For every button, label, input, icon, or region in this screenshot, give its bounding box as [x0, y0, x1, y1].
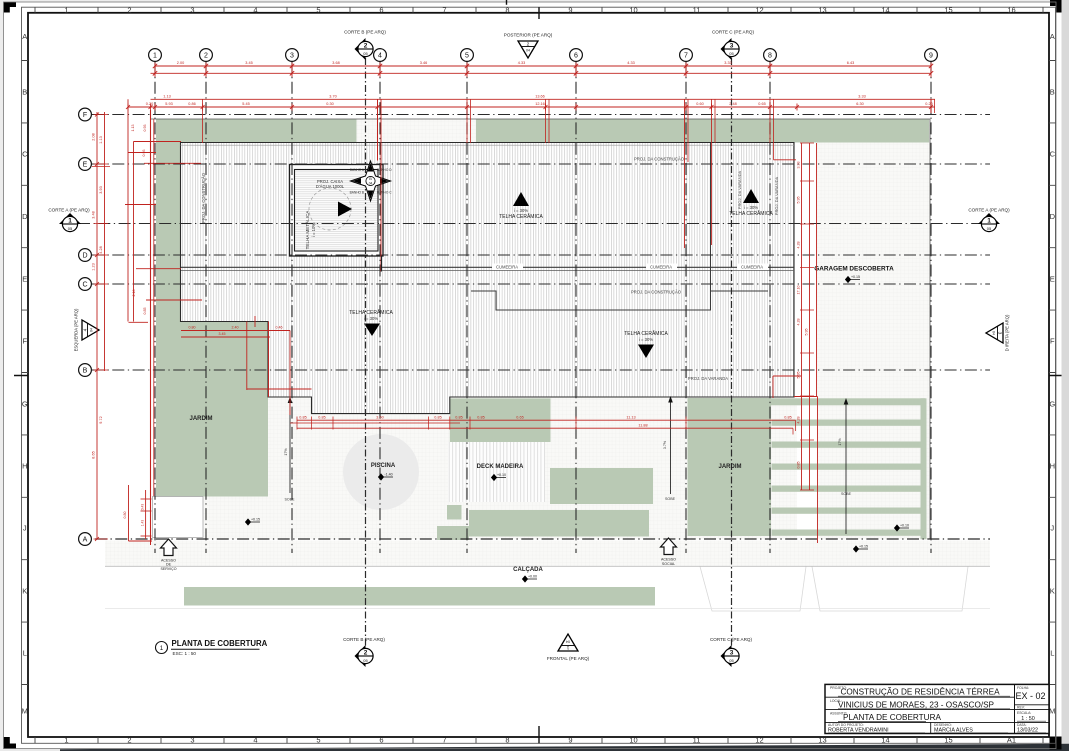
svg-text:TELHA CERÂMICA: TELHA CERÂMICA	[729, 210, 773, 217]
svg-text:A: A	[83, 537, 88, 544]
svg-text:L: L	[23, 649, 27, 658]
svg-text:4: 4	[378, 53, 382, 60]
svg-text:4.33: 4.33	[518, 61, 525, 65]
svg-text:PROJ. DA VARANDA: PROJ. DA VARANDA	[737, 170, 742, 209]
svg-text:3.33: 3.33	[858, 94, 865, 98]
svg-text:8: 8	[768, 53, 772, 60]
svg-text:4: 4	[82, 328, 88, 331]
svg-text:5.95: 5.95	[797, 372, 801, 379]
svg-text:11: 11	[693, 736, 701, 745]
svg-text:17%: 17%	[838, 438, 842, 446]
svg-text:05: 05	[68, 226, 73, 231]
svg-text:5.93: 5.93	[165, 102, 172, 106]
svg-text:+0.15: +0.15	[851, 275, 860, 279]
svg-text:3: 3	[190, 5, 194, 14]
svg-text:BANHO D: BANHO D	[377, 168, 392, 172]
svg-text:7: 7	[442, 736, 446, 745]
svg-text:1: 1	[153, 53, 157, 60]
svg-text:3.33: 3.33	[724, 61, 731, 65]
svg-text:3: 3	[190, 736, 194, 745]
svg-text:13: 13	[818, 736, 826, 745]
svg-text:SOBE: SOBE	[665, 497, 676, 501]
svg-text:11.13: 11.13	[626, 415, 635, 419]
svg-text:16: 16	[1007, 5, 1015, 14]
svg-text:4.28: 4.28	[797, 417, 801, 424]
svg-text:F: F	[83, 112, 87, 119]
svg-text:CORTE A (PE ARQ): CORTE A (PE ARQ)	[968, 208, 1010, 213]
svg-text:4.28: 4.28	[797, 242, 801, 249]
svg-text:3: 3	[730, 43, 734, 50]
svg-text:1.13: 1.13	[99, 136, 103, 143]
svg-text:13: 13	[818, 5, 826, 14]
svg-text:SERVIÇO: SERVIÇO	[160, 567, 176, 571]
svg-text:FOLHA:: FOLHA:	[1017, 686, 1029, 690]
svg-text:05: 05	[363, 658, 368, 663]
svg-text:2: 2	[527, 41, 530, 47]
svg-text:0.46: 0.46	[276, 325, 283, 329]
svg-text:04: 04	[526, 49, 530, 53]
svg-text:ESQUERDA (PE ARQ): ESQUERDA (PE ARQ)	[74, 308, 79, 351]
svg-text:PLANTA DE COBERTURA: PLANTA DE COBERTURA	[843, 713, 942, 722]
svg-text:5: 5	[316, 736, 320, 745]
svg-text:C: C	[82, 282, 87, 289]
svg-text:0.86: 0.86	[188, 102, 195, 106]
svg-text:i = 30%: i = 30%	[639, 337, 653, 342]
svg-text:SOBE: SOBE	[285, 498, 296, 502]
svg-text:D: D	[82, 253, 87, 260]
svg-text:1.13: 1.13	[131, 125, 135, 132]
svg-text:8: 8	[505, 5, 509, 14]
svg-text:3: 3	[997, 332, 1003, 335]
svg-text:D: D	[1050, 212, 1056, 221]
svg-text:8: 8	[505, 736, 509, 745]
svg-text:C: C	[22, 150, 28, 159]
svg-text:10: 10	[629, 5, 637, 14]
svg-text:3.7%: 3.7%	[663, 440, 667, 449]
svg-text:11: 11	[693, 5, 701, 14]
svg-text:BANHO A: BANHO A	[350, 168, 365, 172]
svg-text:FRONTAL (PE ARQ): FRONTAL (PE ARQ)	[547, 656, 590, 661]
svg-text:1: 1	[987, 218, 991, 225]
svg-text:L: L	[1050, 649, 1054, 658]
svg-text:3.45: 3.45	[245, 61, 252, 65]
svg-text:2: 2	[204, 53, 208, 60]
svg-text:JARDIM: JARDIM	[718, 464, 741, 470]
svg-text:CUMEEIRA: CUMEEIRA	[650, 265, 672, 270]
svg-text:F: F	[1050, 337, 1055, 346]
svg-text:3.70: 3.70	[329, 94, 336, 98]
svg-text:REV:: REV:	[1017, 705, 1025, 709]
svg-text:6.43: 6.43	[847, 61, 854, 65]
svg-text:PROJ. DA CONSTRUÇÃO: PROJ. DA CONSTRUÇÃO	[631, 290, 682, 295]
svg-text:CORTE B (PE ARQ): CORTE B (PE ARQ)	[343, 637, 385, 642]
svg-text:0.20: 0.20	[925, 102, 932, 106]
svg-text:F: F	[23, 337, 28, 346]
svg-text:05: 05	[987, 226, 992, 231]
svg-text:14: 14	[881, 736, 889, 745]
svg-text:1: 1	[64, 5, 68, 14]
svg-text:1: 1	[160, 645, 164, 652]
svg-text:17%: 17%	[284, 448, 288, 456]
svg-text:05: 05	[729, 658, 734, 663]
svg-text:CORTE C (PE ARQ): CORTE C (PE ARQ)	[710, 637, 752, 642]
svg-text:DECK MADEIRA: DECK MADEIRA	[477, 464, 524, 470]
svg-text:CORTE A (PE ARQ): CORTE A (PE ARQ)	[48, 208, 90, 213]
svg-text:9: 9	[568, 736, 572, 745]
svg-text:11.88: 11.88	[638, 423, 647, 427]
svg-text:+0.15: +0.15	[251, 518, 260, 522]
svg-text:5: 5	[465, 53, 469, 60]
svg-text:0.30: 0.30	[326, 102, 333, 106]
svg-text:9: 9	[568, 5, 572, 14]
svg-text:0.85: 0.85	[455, 415, 462, 419]
svg-text:3: 3	[290, 53, 294, 60]
svg-text:2.48: 2.48	[729, 102, 736, 106]
svg-text:6.30: 6.30	[856, 102, 863, 106]
svg-text:K: K	[1050, 587, 1055, 596]
svg-text:JARDIM: JARDIM	[189, 416, 212, 422]
svg-text:J: J	[23, 524, 27, 533]
svg-text:04: 04	[566, 640, 570, 644]
svg-text:0.85: 0.85	[318, 415, 325, 419]
svg-text:PROJ. DA CONSTRUÇÃO: PROJ. DA CONSTRUÇÃO	[201, 172, 206, 223]
svg-text:K: K	[22, 587, 27, 596]
svg-text:12: 12	[755, 5, 763, 14]
svg-text:B: B	[1050, 87, 1055, 96]
svg-text:4: 4	[253, 5, 257, 14]
svg-text:2.08: 2.08	[92, 133, 96, 140]
svg-text:2: 2	[127, 736, 131, 745]
svg-text:3.68: 3.68	[332, 61, 339, 65]
svg-text:SOBE: SOBE	[841, 492, 852, 496]
svg-text:TELHA CERÂMICA: TELHA CERÂMICA	[499, 213, 543, 220]
svg-text:0.65: 0.65	[758, 102, 765, 106]
svg-text:3.48: 3.48	[92, 211, 96, 218]
svg-text:04: 04	[369, 182, 373, 186]
svg-text:E: E	[22, 275, 27, 284]
svg-text:5: 5	[316, 5, 320, 14]
svg-text:-1.40: -1.40	[384, 473, 392, 477]
svg-text:i = 30%: i = 30%	[364, 316, 378, 321]
svg-text:M: M	[1049, 707, 1055, 716]
svg-text:CORTE B (PE ARQ): CORTE B (PE ARQ)	[344, 30, 386, 35]
svg-text:04: 04	[90, 328, 94, 332]
svg-text:7: 7	[442, 5, 446, 14]
svg-text:+0.10: +0.10	[900, 524, 909, 528]
svg-text:J: J	[1050, 524, 1054, 533]
svg-text:13.66: 13.66	[535, 94, 545, 98]
svg-text:ACESSO: ACESSO	[661, 558, 676, 562]
svg-text:BANHO B: BANHO B	[350, 191, 364, 195]
svg-text:4.28: 4.28	[797, 319, 801, 326]
svg-text:14: 14	[881, 5, 889, 14]
svg-text:C: C	[1050, 150, 1056, 159]
svg-text:0.80: 0.80	[123, 512, 127, 519]
svg-text:05: 05	[729, 51, 734, 56]
svg-text:10: 10	[629, 736, 637, 745]
svg-text:17.10: 17.10	[797, 286, 801, 295]
svg-text:1: 1	[64, 736, 68, 745]
svg-text:+0.15: +0.15	[859, 545, 868, 549]
svg-text:POSTERIOR (PE ARQ): POSTERIOR (PE ARQ)	[504, 33, 553, 38]
svg-text:5.95: 5.95	[797, 197, 801, 204]
svg-text:2: 2	[364, 43, 368, 50]
svg-text:4.33: 4.33	[627, 61, 634, 65]
svg-text:1: 1	[566, 645, 569, 651]
svg-text:2.00: 2.00	[177, 61, 184, 65]
svg-text:E: E	[83, 162, 88, 169]
svg-text:PROJ. DA VARANDA: PROJ. DA VARANDA	[774, 176, 779, 215]
svg-text:15: 15	[944, 736, 952, 745]
svg-text:0.80: 0.80	[189, 325, 196, 329]
svg-text:05: 05	[363, 51, 368, 56]
svg-text:3.93: 3.93	[99, 186, 103, 193]
svg-text:04: 04	[992, 331, 996, 335]
svg-text:PISCINA: PISCINA	[371, 463, 396, 469]
svg-text:0.85: 0.85	[784, 415, 791, 419]
svg-text:TELHA METÁLICA: TELHA METÁLICA	[304, 210, 310, 250]
svg-text:A1: A1	[1007, 736, 1016, 745]
svg-text:1.23: 1.23	[92, 263, 96, 270]
svg-text:9.72: 9.72	[99, 416, 103, 423]
svg-text:B: B	[369, 177, 372, 181]
svg-text:B: B	[22, 87, 27, 96]
svg-text:5.95: 5.95	[805, 329, 809, 336]
svg-text:2.40: 2.40	[232, 325, 239, 329]
svg-text:2: 2	[127, 5, 131, 14]
svg-text:12.16: 12.16	[535, 102, 545, 106]
svg-text:M: M	[22, 707, 28, 716]
svg-text:D: D	[22, 212, 28, 221]
svg-text:6: 6	[379, 736, 383, 745]
svg-text:3.45: 3.45	[219, 332, 226, 336]
svg-text:0.85: 0.85	[143, 308, 147, 315]
svg-text:TELHA CERÂMICA: TELHA CERÂMICA	[624, 330, 668, 337]
svg-text:BANHO C: BANHO C	[377, 191, 392, 195]
svg-text:CONSTRUÇÃO DE RESIDÊNCIA TÉRRE: CONSTRUÇÃO DE RESIDÊNCIA TÉRREA	[840, 687, 1000, 697]
svg-text:0.85: 0.85	[434, 415, 441, 419]
svg-text:GARAGEM DESCOBERTA: GARAGEM DESCOBERTA	[814, 266, 894, 273]
svg-text:B: B	[83, 368, 88, 375]
svg-text:6: 6	[574, 53, 578, 60]
svg-text:5.45: 5.45	[242, 102, 249, 106]
svg-text:ESCALA:: ESCALA:	[1017, 711, 1031, 715]
svg-text:3.50: 3.50	[376, 415, 383, 419]
svg-text:H: H	[22, 462, 27, 471]
svg-text:0.93: 0.93	[143, 125, 147, 132]
svg-text:CORTE C (PE ARQ): CORTE C (PE ARQ)	[712, 30, 754, 35]
svg-text:0.93: 0.93	[142, 150, 146, 157]
svg-text:TELHA CERÂMICA: TELHA CERÂMICA	[349, 309, 393, 316]
svg-text:A: A	[22, 32, 27, 41]
svg-text:DESENHO:: DESENHO:	[934, 723, 952, 727]
svg-text:PROJ. DA VARANDA: PROJ. DA VARANDA	[688, 376, 728, 381]
svg-text:0.85: 0.85	[797, 462, 801, 469]
svg-text:3.33: 3.33	[797, 162, 801, 169]
svg-text:15: 15	[944, 5, 952, 14]
svg-text:PLANTA DE COBERTURA: PLANTA DE COBERTURA	[172, 639, 268, 648]
svg-text:G: G	[1049, 400, 1055, 409]
svg-text:0.65: 0.65	[516, 415, 523, 419]
svg-text:A: A	[1050, 32, 1055, 41]
svg-text:+0.10: +0.10	[497, 473, 506, 477]
svg-text:ESC: 1 : 50: ESC: 1 : 50	[173, 651, 197, 656]
svg-text:7: 7	[684, 53, 688, 60]
svg-text:0.60: 0.60	[696, 102, 703, 106]
svg-text:1.43: 1.43	[141, 520, 145, 527]
svg-text:3.46: 3.46	[420, 61, 427, 65]
svg-text:9: 9	[929, 53, 933, 60]
svg-text:6: 6	[379, 5, 383, 14]
svg-text:D'ÁGUA 1000L: D'ÁGUA 1000L	[316, 184, 345, 189]
svg-text:AUTOR DO PROJETO:: AUTOR DO PROJETO:	[828, 723, 864, 727]
svg-text:E: E	[1050, 275, 1055, 284]
svg-text:i = 10%: i = 10%	[311, 223, 316, 237]
svg-text:VINICIUS DE MORAES, 23 - OSASC: VINICIUS DE MORAES, 23 - OSASCO/SP	[838, 700, 995, 709]
svg-text:EX - 02: EX - 02	[1015, 691, 1045, 701]
svg-text:2: 2	[364, 650, 368, 657]
svg-text:0.85: 0.85	[299, 415, 306, 419]
svg-text:4.28: 4.28	[99, 246, 103, 253]
svg-text:H: H	[1050, 462, 1055, 471]
svg-text:D IREITA (PE ARQ): D IREITA (PE ARQ)	[1005, 314, 1010, 351]
svg-text:1.13: 1.13	[163, 94, 170, 98]
svg-text:3: 3	[730, 650, 734, 657]
svg-text:DATA:: DATA:	[1017, 723, 1027, 727]
svg-text:CALÇADA: CALÇADA	[513, 567, 543, 573]
svg-text:G: G	[22, 400, 28, 409]
svg-text:1: 1	[68, 218, 72, 225]
svg-text:i = 30%: i = 30%	[514, 208, 528, 213]
svg-text:0.43: 0.43	[141, 504, 145, 511]
svg-text:4: 4	[253, 736, 257, 745]
svg-text:i = 30%: i = 30%	[744, 205, 758, 210]
svg-text:CUMEEIRA: CUMEEIRA	[741, 265, 763, 270]
svg-text:SOCIAL: SOCIAL	[662, 562, 675, 566]
svg-text:2.16: 2.16	[132, 290, 136, 297]
svg-text:0.85: 0.85	[477, 415, 484, 419]
svg-text:8.65: 8.65	[92, 451, 96, 458]
svg-text:PROJ. DA CONSTRUÇÃO: PROJ. DA CONSTRUÇÃO	[634, 157, 685, 162]
svg-text:+0.00: +0.00	[528, 575, 537, 579]
svg-text:12: 12	[755, 736, 763, 745]
svg-text:CUMEEIRA: CUMEEIRA	[496, 265, 518, 270]
